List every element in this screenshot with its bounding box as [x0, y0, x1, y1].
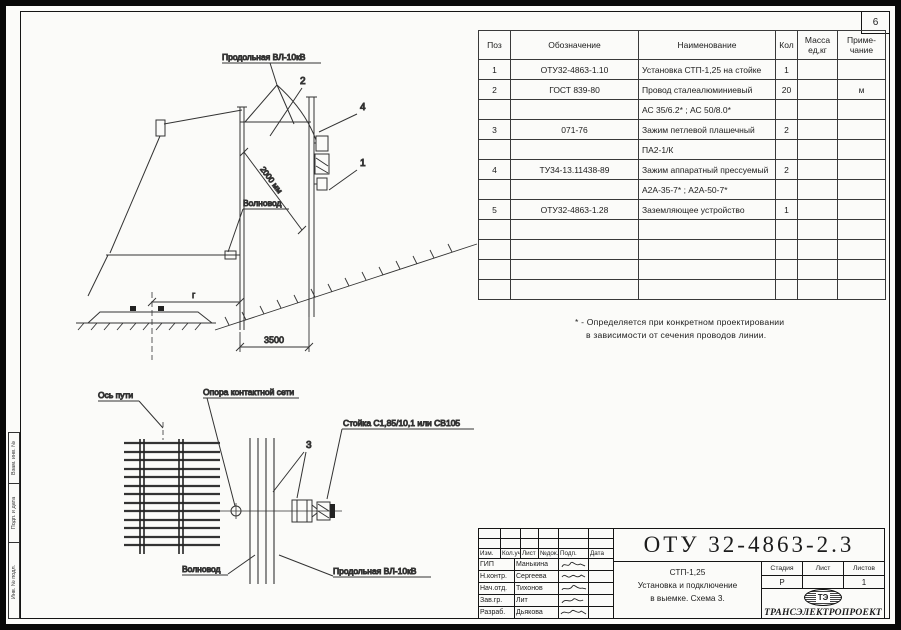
signature	[559, 607, 589, 618]
table-row	[479, 260, 886, 280]
sheets-value: 1	[844, 576, 884, 588]
organization-block: ТЭ ТРАНСЭЛЕКТРОПРОЕКТ	[762, 589, 884, 618]
plan-centerline	[156, 503, 342, 519]
elevation-drawing: Продольная ВЛ-10кВ	[30, 40, 480, 390]
waveguide-label-group: Волновод	[228, 198, 289, 252]
side-stamp-column: Взам. инв. № Подп. и дата Инв. № подл.	[8, 432, 20, 619]
stp-equipment	[314, 136, 329, 190]
waveguide-label-plan: Волновод	[182, 564, 221, 574]
railway-track	[124, 439, 220, 554]
role-label: Разраб.	[479, 607, 515, 618]
footnote-line1: * - Определяется при конкретном проектир…	[575, 316, 784, 329]
date-cell	[589, 607, 613, 618]
table-row: 4ТУ34-13.11438-89Зажим аппаратный прессу…	[479, 160, 886, 180]
change-header-row: Изм. Кол.уч Лист №док. Подп. Дата	[479, 549, 613, 559]
support-label-group: Опора контактной сети	[203, 388, 299, 506]
title-block-signatures: Изм. Кол.уч Лист №док. Подп. Дата ГИП Ма…	[479, 529, 614, 618]
title-block: Изм. Кол.уч Лист №док. Подп. Дата ГИП Ма…	[478, 528, 885, 619]
signature	[559, 595, 589, 606]
person-name: Сергеева	[515, 571, 559, 582]
hdr-koluch: Кол.уч	[501, 549, 521, 558]
callout-2: 2	[270, 76, 306, 136]
ground-flat	[76, 323, 216, 330]
hdr-ndok: №док.	[539, 549, 559, 558]
hdr-izm: Изм.	[479, 549, 501, 558]
stand-label-group: Стойка С1,85/10,1 или СВ105	[327, 418, 474, 499]
stage-value: Р	[762, 576, 803, 588]
side-stamp-cell: Подп. и дата	[9, 484, 19, 543]
signature-row: Зав.гр. Лит	[479, 595, 613, 607]
date-cell	[589, 583, 613, 594]
waveguide-label: Волновод	[243, 198, 282, 208]
role-label: Зав.гр.	[479, 595, 515, 606]
table-row: ПА2-1/К	[479, 140, 886, 160]
organization-logo: ТЭ	[804, 589, 842, 606]
footnote-line2: в зависимости от сечения проводов линии.	[586, 329, 784, 342]
signature	[559, 583, 589, 594]
col-designation: Обозначение	[511, 31, 639, 60]
signature	[559, 571, 589, 582]
col-name: Наименование	[639, 31, 776, 60]
guy-wires	[88, 110, 242, 296]
doc-title-line3: в выемке. Схема 3.	[614, 592, 761, 605]
svg-text:3: 3	[306, 440, 312, 451]
signature-row: Н.контр. Сергеева	[479, 571, 613, 583]
person-name: Манькина	[515, 559, 559, 570]
person-name: Тихонов	[515, 583, 559, 594]
vl-10kv-label-group-plan: Продольная ВЛ-10кВ	[279, 555, 431, 577]
signature-row: Разраб. Дьякова	[479, 607, 613, 618]
date-cell	[589, 571, 613, 582]
change-row	[479, 539, 613, 549]
person-name: Дьякова	[515, 607, 559, 618]
table-row: АС 35/6.2* ; АС 50/8.0*	[479, 100, 886, 120]
svg-text:2000 мм: 2000 мм	[258, 165, 284, 195]
svg-text:1: 1	[360, 158, 366, 169]
role-label: Н.контр.	[479, 571, 515, 582]
svg-text:г: г	[192, 290, 196, 300]
role-label: Нач.отд.	[479, 583, 515, 594]
hdr-list: Лист	[521, 549, 539, 558]
svg-text:2: 2	[300, 76, 306, 87]
cutting-slope	[215, 244, 477, 330]
callout-3: 3	[273, 440, 312, 498]
vl-10kv-label-plan: Продольная ВЛ-10кВ	[333, 566, 417, 576]
table-row: А2А-35-7* ; А2А-50-7*	[479, 180, 886, 200]
scanned-drawing-sheet: { "page": { "number": "6" }, "spec_table…	[0, 0, 901, 630]
footnote: * - Определяется при конкретном проектир…	[575, 316, 784, 343]
table-row: 5ОТУ32-4863-1.28Заземляющее устройство1	[479, 200, 886, 220]
track-embankment	[88, 306, 212, 323]
spec-table-header: Поз Обозначение Наименование Кол Массаед…	[479, 31, 886, 60]
svg-text:3500: 3500	[264, 335, 284, 345]
doc-title-line1: СТП-1,25	[614, 566, 761, 579]
table-row	[479, 280, 886, 300]
hdr-data: Дата	[589, 549, 613, 558]
waveguide-label-group-plan: Волновод	[182, 555, 255, 575]
change-row	[479, 529, 613, 539]
sheet: 6 Продольная ВЛ-10кВ	[6, 6, 895, 624]
plan-drawing: Ось пути Опора контактной сети	[40, 388, 480, 598]
organization-name: ТРАНСЭЛЕКТРОПРОЕКТ	[764, 607, 882, 618]
track-axis-label-group: Ось пути	[98, 390, 163, 440]
side-stamp-cell: Взам. инв. №	[9, 433, 19, 484]
col-mass: Массаед,кг	[798, 31, 838, 60]
callout-4: 4	[319, 102, 366, 132]
signature	[559, 559, 589, 570]
sheet-header: Лист	[803, 562, 844, 575]
doc-title-line2: Установка и подключение	[614, 579, 761, 592]
side-stamp-cell: Инв. № подл.	[9, 543, 19, 620]
dimension-2000: 2000 мм	[240, 148, 306, 234]
sheet-value	[803, 576, 844, 588]
svg-text:4: 4	[360, 102, 366, 113]
callout-1: 1	[329, 158, 366, 190]
sheets-header: Листов	[844, 562, 884, 575]
table-row	[479, 240, 886, 260]
track-axis-label: Ось пути	[98, 390, 133, 400]
col-qty: Кол	[776, 31, 798, 60]
hdr-podp: Подп.	[559, 549, 589, 558]
support-pole	[237, 107, 247, 330]
date-cell	[589, 595, 613, 606]
table-row	[479, 220, 886, 240]
waveguide-wire	[106, 251, 240, 259]
col-pos: Поз	[479, 31, 511, 60]
spec-table: Поз Обозначение Наименование Кол Массаед…	[478, 30, 886, 300]
signature-row: ГИП Манькина	[479, 559, 613, 571]
stand-label: Стойка С1,85/10,1 или СВ105	[343, 418, 460, 428]
dimension-3500: 3500	[236, 302, 313, 352]
title-block-right: ОТУ 32-4863-2.3 СТП-1,25 Установка и под…	[614, 529, 884, 618]
table-row: 1ОТУ32-4863-1.10Установка СТП-1,25 на ст…	[479, 60, 886, 80]
support-label: Опора контактной сети	[203, 388, 294, 397]
wire-triangle	[240, 85, 316, 140]
dimension-g: г	[148, 290, 244, 306]
stage-header: Стадия	[762, 562, 803, 575]
stage-sheet-block: Стадия Лист Листов Р 1 ТЭ ТРАНСЭЛЕКТРОПР…	[762, 562, 884, 618]
vl-10kv-label-group: Продольная ВЛ-10кВ	[222, 52, 321, 85]
person-name: Лит	[515, 595, 559, 606]
signature-row: Нач.отд. Тихонов	[479, 583, 613, 595]
date-cell	[589, 559, 613, 570]
vl-10kv-label: Продольная ВЛ-10кВ	[222, 52, 306, 62]
document-number: ОТУ 32-4863-2.3	[614, 529, 884, 562]
table-row: 2ГОСТ 839-80Провод сталеалюминиевый20м	[479, 80, 886, 100]
table-row: 3071-76Зажим петлевой плашечный2	[479, 120, 886, 140]
col-note: Приме-чание	[838, 31, 886, 60]
document-title: СТП-1,25 Установка и подключение в выемк…	[614, 562, 762, 618]
role-label: ГИП	[479, 559, 515, 570]
